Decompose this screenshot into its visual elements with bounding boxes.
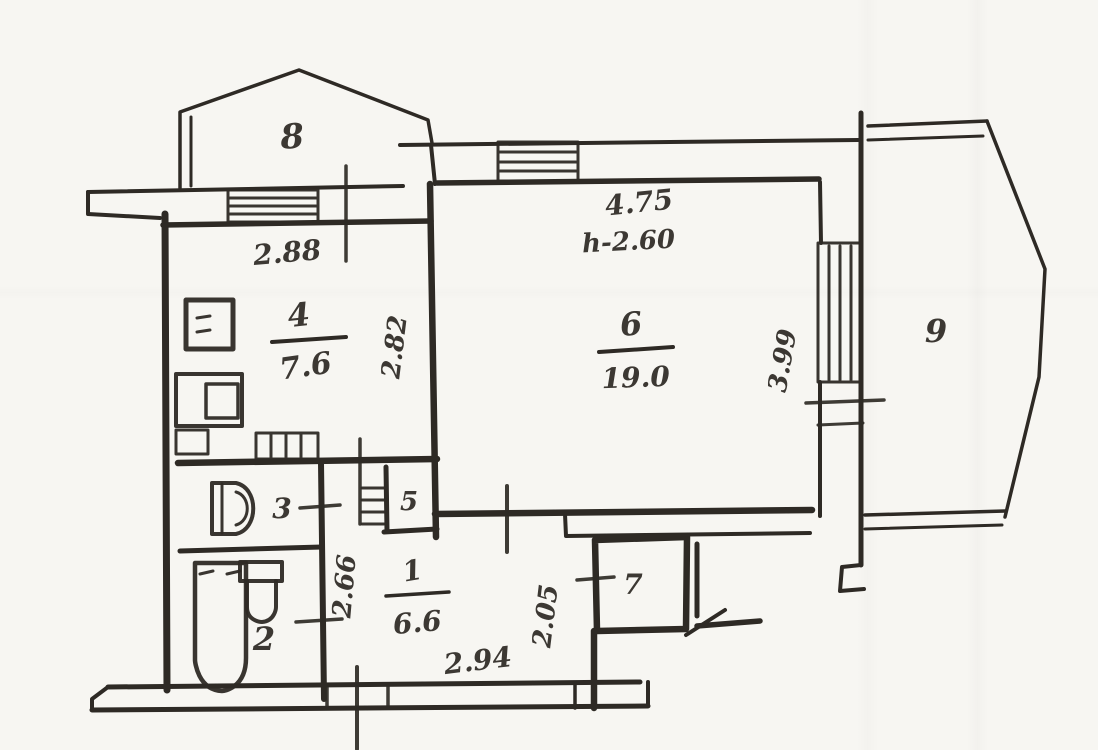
closet5-hatch (362, 488, 386, 524)
toilet-bowl (247, 581, 276, 622)
dim-2-05: 2.05 (527, 583, 565, 651)
wall-right-bottom-notch (840, 565, 864, 591)
stove-burner-marks (197, 316, 210, 332)
room-2-number: 2 (252, 620, 275, 658)
wall-living-bottom-lower-line (565, 514, 810, 536)
window-living-balcony9 (818, 243, 861, 382)
balcony9-right-edge (987, 121, 1045, 517)
balcony9-top-inner (868, 136, 983, 140)
room-4-area: 7.6 (277, 346, 334, 388)
dim-2-66: 2.66 (327, 553, 362, 620)
wall-bottom-upper-line (108, 682, 640, 687)
wall-closet5-bottom (384, 529, 437, 532)
washbasin-inner-lines (222, 484, 247, 533)
kitchen-sink-basin (206, 384, 238, 418)
wall-top-outer (400, 140, 858, 145)
fraction-bar-room1 (386, 592, 449, 596)
tick-wc-door (300, 505, 340, 508)
room-5-number: 5 (400, 487, 418, 517)
wall-top-left-step (88, 192, 160, 218)
stove-fixture (186, 300, 233, 349)
wall-top-step (431, 145, 435, 184)
scanned-floor-plan-page: 8 2.88 4 7.6 2.82 4.75 h-2.60 6 19.0 3.9… (0, 0, 1098, 750)
wall-bottom-left-step (92, 687, 108, 710)
room-1-number: 1 (400, 553, 425, 589)
balcony8-outline (180, 70, 432, 188)
tick-balcony9-dim (806, 400, 884, 403)
room-4-number: 4 (286, 295, 312, 335)
room-8-number: 8 (278, 116, 305, 158)
wall-wc-bath-right (321, 463, 324, 699)
tick-balcony9-dim2 (818, 423, 863, 425)
wall-left-exterior (165, 214, 167, 690)
wall-bottom-lower-line (92, 706, 648, 710)
kitchen-cabinet (176, 430, 208, 454)
window-living-top (498, 142, 578, 181)
dim-3-99: 3.99 (763, 327, 804, 395)
dim-2-94: 2.94 (441, 640, 514, 681)
dim-4-75: 4.75 (603, 183, 674, 223)
room-9-number: 9 (925, 312, 947, 350)
balcony9-bottom-inner (865, 525, 1002, 529)
tick-pantry-door (577, 577, 614, 580)
ceiling-height-note: h-2.60 (581, 225, 675, 260)
room-1-area: 6.6 (391, 604, 442, 641)
bathtub-faucet-marks (200, 571, 240, 574)
wall-living-top-inner (437, 179, 819, 183)
fraction-bar-room6 (599, 347, 673, 352)
balcony9-top-outer (868, 121, 987, 126)
walls (88, 70, 1045, 710)
wall-right-inner-upper (820, 182, 821, 243)
room-3-number: 3 (272, 492, 291, 525)
room-6-area: 19.0 (601, 360, 671, 395)
dim-2-88: 2.88 (251, 233, 323, 272)
room-7-number: 7 (623, 568, 643, 601)
fraction-bar-room4 (272, 337, 346, 342)
vent-grate (256, 433, 318, 459)
floor-plan-drawing: 8 2.88 4 7.6 2.82 4.75 h-2.60 6 19.0 3.9… (0, 0, 1098, 750)
wall-living-bottom (435, 510, 812, 514)
window-kitchen-balcony8 (228, 190, 318, 222)
room-6-number: 6 (618, 304, 643, 344)
dim-2-82: 2.82 (376, 314, 414, 382)
wall-wc-bath-partition (180, 547, 322, 551)
tick-bath-door (296, 619, 342, 622)
bathtub-fixture (195, 563, 246, 691)
wall-kitchen-living-partition (430, 184, 436, 537)
balcony9-bottom-outer (865, 511, 1005, 515)
